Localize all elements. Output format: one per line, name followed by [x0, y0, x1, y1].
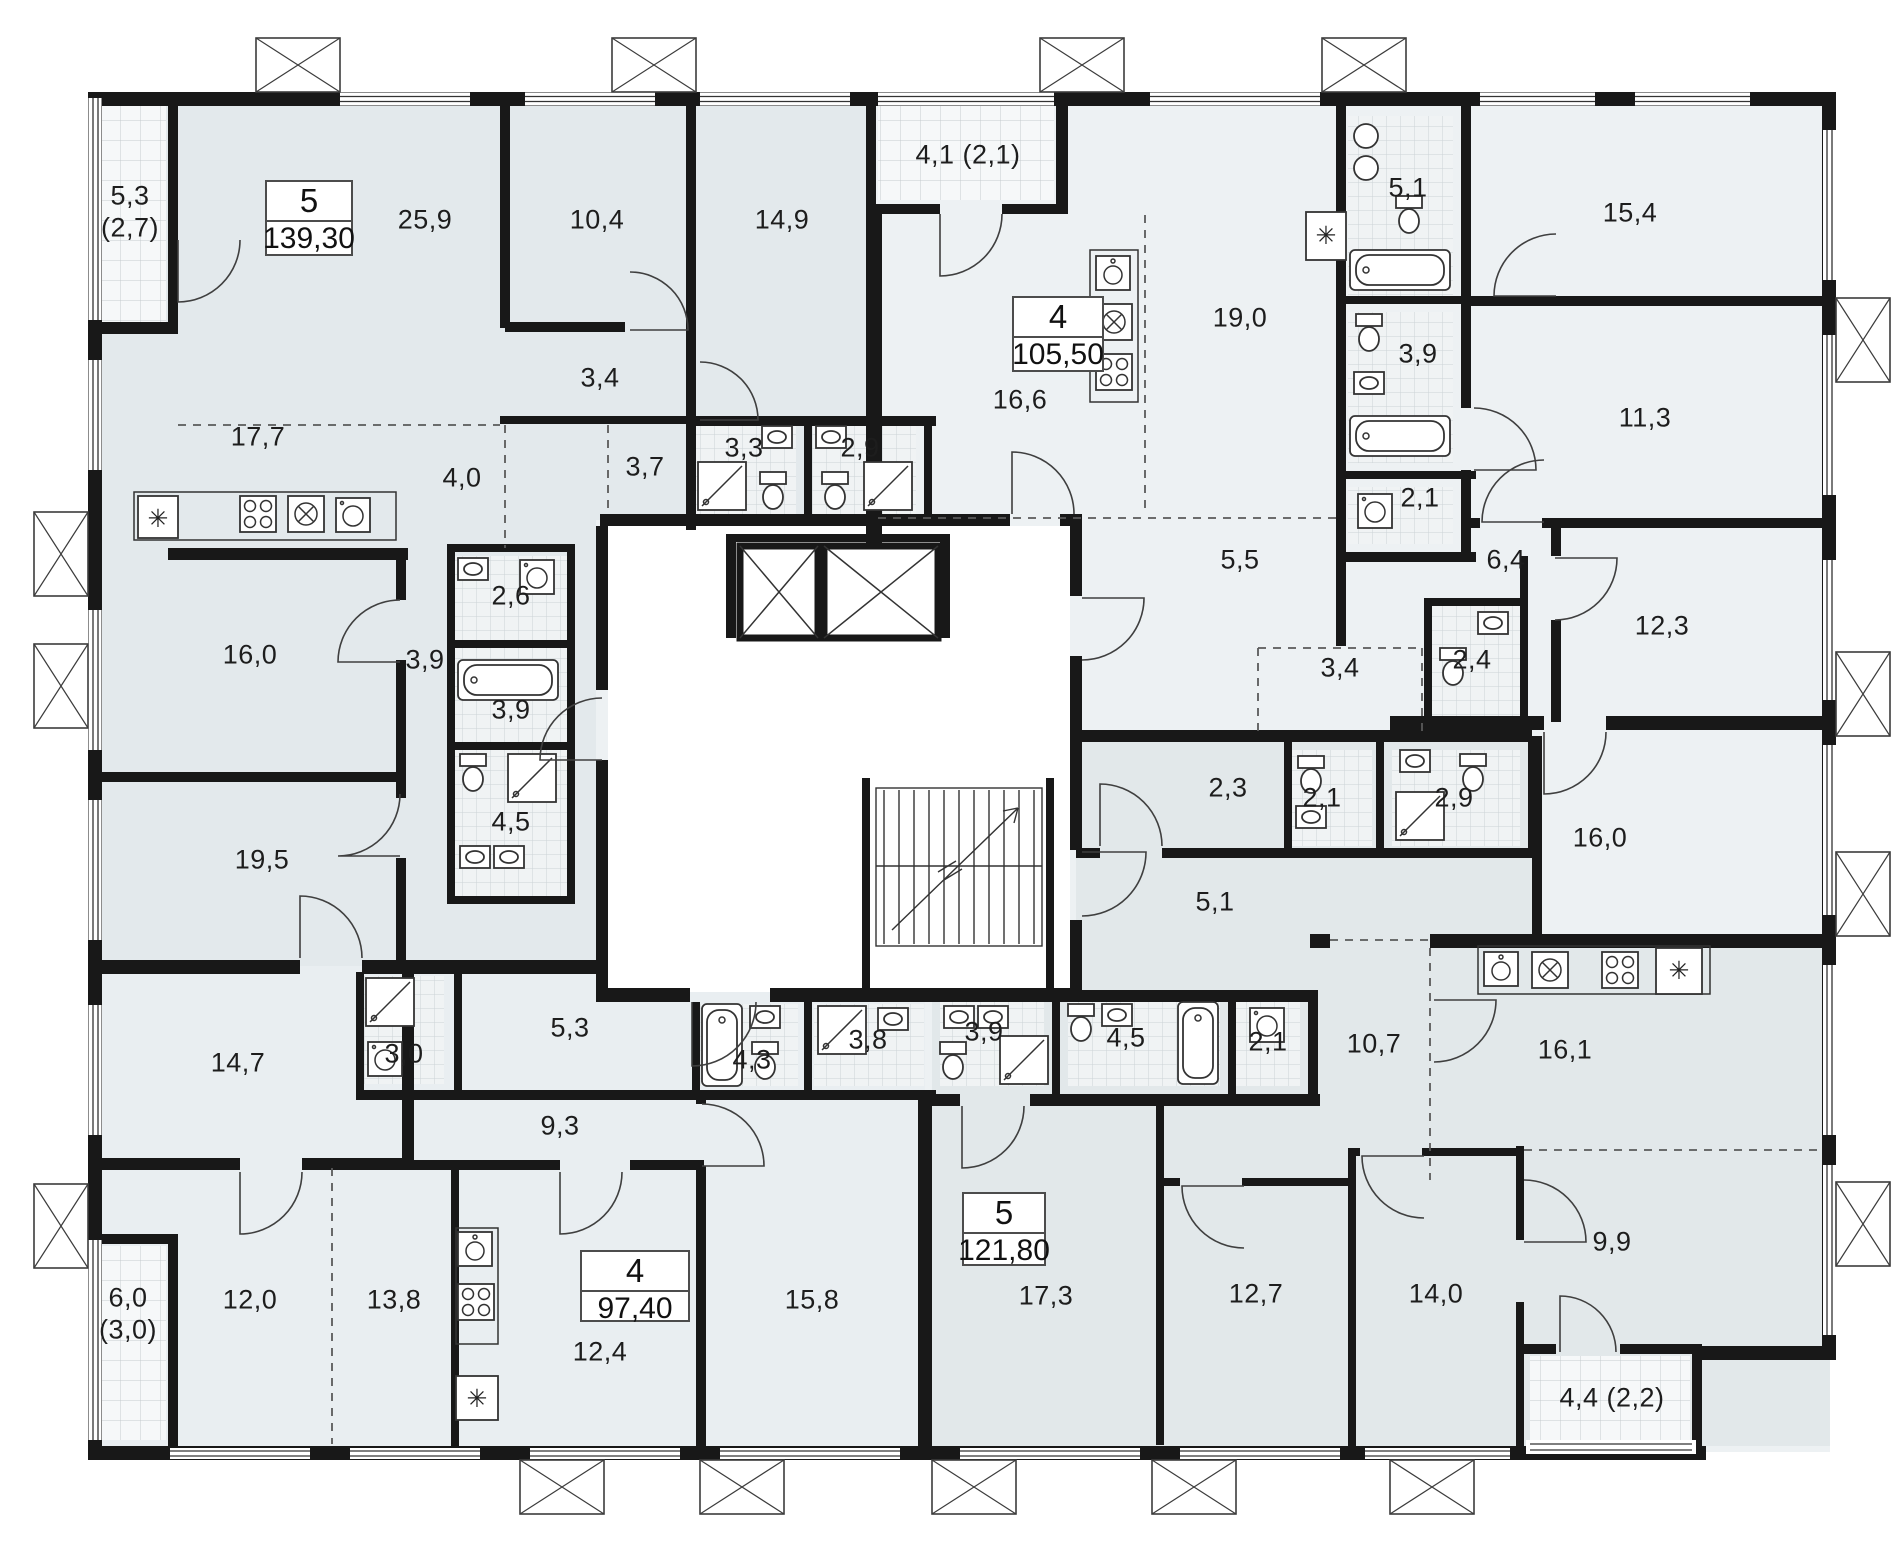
bathtub-icon — [1350, 416, 1450, 456]
room-area-label: 15,8 — [785, 1285, 840, 1316]
washbasin-icon — [1354, 124, 1378, 148]
elevator-shaft-icon — [726, 534, 950, 638]
sink-icon — [1096, 256, 1130, 290]
room-area-label: 13,8 — [367, 1285, 422, 1316]
washbasin-icon — [494, 846, 524, 868]
room-area-label: 14,7 — [211, 1048, 266, 1079]
room-area-label: 16,0 — [1573, 823, 1628, 854]
shower-icon — [864, 462, 912, 510]
room-area-label: 17,3 — [1019, 1281, 1074, 1312]
washbasin-icon — [762, 426, 792, 448]
washing-machine-icon — [1358, 494, 1392, 528]
toilet-icon — [460, 754, 486, 791]
apartment-rooms-count: 5 — [964, 1194, 1044, 1234]
apartment-total-area: 139,30 — [267, 222, 351, 256]
room-area-label: 3,3 — [724, 433, 763, 464]
toilet-icon — [822, 472, 848, 509]
bathtub-icon — [1350, 250, 1450, 290]
room-area-label: 3,9 — [405, 645, 444, 676]
room-area-label: 2,1 — [1302, 783, 1341, 814]
room-area-label: 4,4 (2,2) — [1559, 1383, 1664, 1414]
shower-icon — [698, 462, 746, 510]
svg-text:✳: ✳ — [148, 504, 169, 533]
apartment-rooms-count: 4 — [1014, 298, 1102, 338]
room-area-label: (2,7) — [101, 213, 159, 244]
apartment-summary-box: 5 121,80 — [962, 1192, 1046, 1266]
room-area-label: 4,5 — [491, 807, 530, 838]
room-area-label: 15,4 — [1603, 198, 1658, 229]
room-area-label: 5,3 — [550, 1013, 589, 1044]
room-area-label: 3,4 — [580, 363, 619, 394]
sink-icon — [1532, 952, 1568, 988]
room-area-label: 9,3 — [540, 1111, 579, 1142]
room-area-label: 16,0 — [223, 640, 278, 671]
floor-plan: ✳ ✳ — [0, 0, 1900, 1543]
svg-text:✳: ✳ — [467, 1384, 488, 1413]
washbasin-icon — [458, 558, 488, 580]
svg-text:✳: ✳ — [1316, 221, 1337, 250]
shower-icon — [366, 978, 414, 1026]
room-area-label: 3,0 — [384, 1039, 423, 1070]
room-area-label: 2,4 — [1452, 645, 1491, 676]
room-area-label: 4,5 — [1106, 1023, 1145, 1054]
sink-icon — [1484, 952, 1518, 986]
room-area-label: 10,7 — [1347, 1029, 1402, 1060]
svg-text:✳: ✳ — [1669, 956, 1690, 985]
washbasin-icon — [460, 846, 490, 868]
room-area-label: 16,6 — [993, 385, 1048, 416]
stove-icon — [240, 496, 276, 532]
apartment-total-area: 105,50 — [1014, 338, 1102, 372]
dishwasher-icon — [336, 498, 370, 532]
room-area-label: 12,3 — [1635, 611, 1690, 642]
room-area-label: 4,0 — [442, 463, 481, 494]
apartment-rooms-count: 4 — [582, 1252, 688, 1292]
sink-icon — [288, 496, 324, 532]
room-area-label: 2,1 — [1248, 1027, 1287, 1058]
toilet-icon — [1356, 314, 1382, 351]
room-area-label: 14,0 — [1409, 1279, 1464, 1310]
room-area-label: (3,0) — [99, 1315, 157, 1346]
toilet-icon — [1068, 1004, 1094, 1041]
room-area-label: 3,9 — [1398, 339, 1437, 370]
stove-icon — [458, 1284, 494, 1320]
room-area-label: 3,7 — [625, 452, 664, 483]
room-area-label: 12,0 — [223, 1285, 278, 1316]
room-area-label: 17,7 — [231, 422, 286, 453]
shower-icon — [508, 754, 556, 802]
room-area-label: 5,3 — [110, 181, 149, 212]
washbasin-icon — [1354, 372, 1384, 394]
room-area-label: 2,6 — [491, 581, 530, 612]
room-area-label: 6,4 — [1486, 545, 1525, 576]
room-area-label: 19,0 — [1213, 303, 1268, 334]
toilet-icon — [940, 1042, 966, 1079]
room-area-label: 5,5 — [1220, 545, 1259, 576]
room-area-label: 14,9 — [755, 205, 810, 236]
room-area-label: 3,9 — [964, 1017, 1003, 1048]
apartment-total-area: 121,80 — [964, 1234, 1044, 1268]
shower-icon — [1000, 1036, 1048, 1084]
room-area-label: 6,0 — [108, 1283, 147, 1314]
room-area-label: 2,9 — [840, 433, 879, 464]
room-area-label: 4,3 — [732, 1045, 771, 1076]
bathtub-icon — [1178, 1002, 1218, 1084]
room-area-label: 9,9 — [1592, 1227, 1631, 1258]
room-area-label: 2,3 — [1208, 773, 1247, 804]
apartment-summary-box: 4 105,50 — [1012, 296, 1104, 372]
room-area-label: 12,7 — [1229, 1279, 1284, 1310]
room-area-label: 3,8 — [848, 1025, 887, 1056]
sink-icon — [458, 1232, 492, 1266]
room-area-label: 2,1 — [1400, 483, 1439, 514]
room-area-label: 25,9 — [398, 205, 453, 236]
apartment-summary-box: 5 139,30 — [265, 180, 353, 256]
room-area-label: 12,4 — [573, 1337, 628, 1368]
room-area-label: 5,1 — [1388, 173, 1427, 204]
apartment-summary-box: 4 97,40 — [580, 1250, 690, 1322]
apartment-rooms-count: 5 — [267, 182, 351, 222]
room-area-label: 10,4 — [570, 205, 625, 236]
room-area-label: 16,1 — [1538, 1035, 1593, 1066]
apartment-total-area: 97,40 — [582, 1292, 688, 1326]
room-area-label: 5,1 — [1195, 887, 1234, 918]
washbasin-icon — [1354, 156, 1378, 180]
washbasin-icon — [1400, 750, 1430, 772]
room-area-label: 3,9 — [491, 695, 530, 726]
room-area-label: 2,9 — [1434, 783, 1473, 814]
washbasin-icon — [1478, 612, 1508, 634]
room-area-label: 4,1 (2,1) — [915, 140, 1020, 171]
toilet-icon — [760, 472, 786, 509]
room-area-label: 3,4 — [1320, 653, 1359, 684]
stove-icon — [1602, 952, 1638, 988]
room-area-label: 11,3 — [1619, 403, 1672, 434]
room-area-label: 19,5 — [235, 845, 290, 876]
